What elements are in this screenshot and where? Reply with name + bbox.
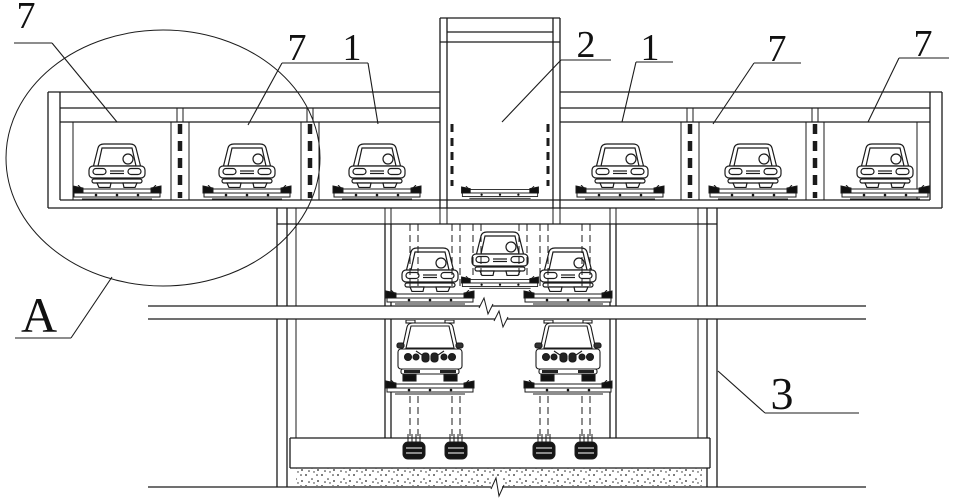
left-end-wall	[48, 92, 73, 208]
break-symbol	[494, 310, 508, 328]
underground-pit	[277, 208, 717, 487]
parking-pallet	[73, 185, 161, 199]
break-symbol	[479, 297, 493, 315]
pit-pallet	[524, 290, 612, 304]
pit-lower-left-car	[397, 320, 463, 381]
pit-lift-car	[472, 232, 528, 276]
parking-pallet	[841, 185, 929, 199]
parking-system-sectional-drawing: 7 7 1 2 1 7 7	[0, 0, 957, 500]
bay-separator-dashed-lines	[180, 124, 815, 198]
parking-pallet	[203, 185, 291, 199]
callout-7-bay2: 7	[248, 27, 341, 125]
parked-car	[89, 144, 145, 188]
callout-label: 7	[768, 28, 787, 70]
callout-2-lift-bay: 2	[502, 24, 611, 122]
hoist-cables-lower	[410, 396, 590, 436]
pit-lift-pallet	[462, 276, 539, 288]
pit-lower-right-car	[535, 320, 601, 381]
pit-pallet	[524, 380, 612, 394]
pit-base-slab	[290, 438, 710, 468]
callout-3-pit-wall: 3	[718, 368, 859, 419]
ground-break-band	[148, 297, 866, 328]
callout-7-bay7: 7	[868, 23, 949, 122]
pit-pallet	[386, 380, 474, 394]
pit-pallet	[386, 290, 474, 304]
callout-A-detail: A	[15, 277, 112, 343]
empty-lift-pallet	[462, 186, 539, 198]
roof-deck	[48, 92, 942, 122]
callout-label: 1	[641, 27, 660, 69]
callout-label: 7	[17, 0, 36, 37]
patent-figure-canvas: 7 7 1 2 1 7 7	[0, 0, 957, 500]
parking-pallet	[333, 185, 421, 199]
pit-top-beam	[277, 208, 717, 224]
parked-car	[349, 144, 405, 188]
callouts: 7 7 1 2 1 7 7	[14, 0, 949, 419]
parking-pallet	[576, 185, 664, 199]
above-ground-structure	[48, 92, 942, 208]
detail-circle	[6, 30, 320, 286]
parked-car	[857, 144, 913, 188]
callout-label: A	[21, 287, 57, 343]
parked-car	[725, 144, 781, 188]
callout-label: 7	[914, 23, 933, 65]
callout-label: 3	[771, 368, 794, 419]
callout-7-top-left: 7	[14, 0, 117, 122]
parked-car	[219, 144, 275, 188]
parked-car	[592, 144, 648, 188]
callout-1-bay3: 1	[341, 27, 378, 124]
lift-tower	[440, 18, 560, 208]
callout-7-bay6: 7	[713, 28, 801, 124]
ground-floor-slab	[48, 200, 942, 208]
parking-pallet	[709, 185, 797, 199]
